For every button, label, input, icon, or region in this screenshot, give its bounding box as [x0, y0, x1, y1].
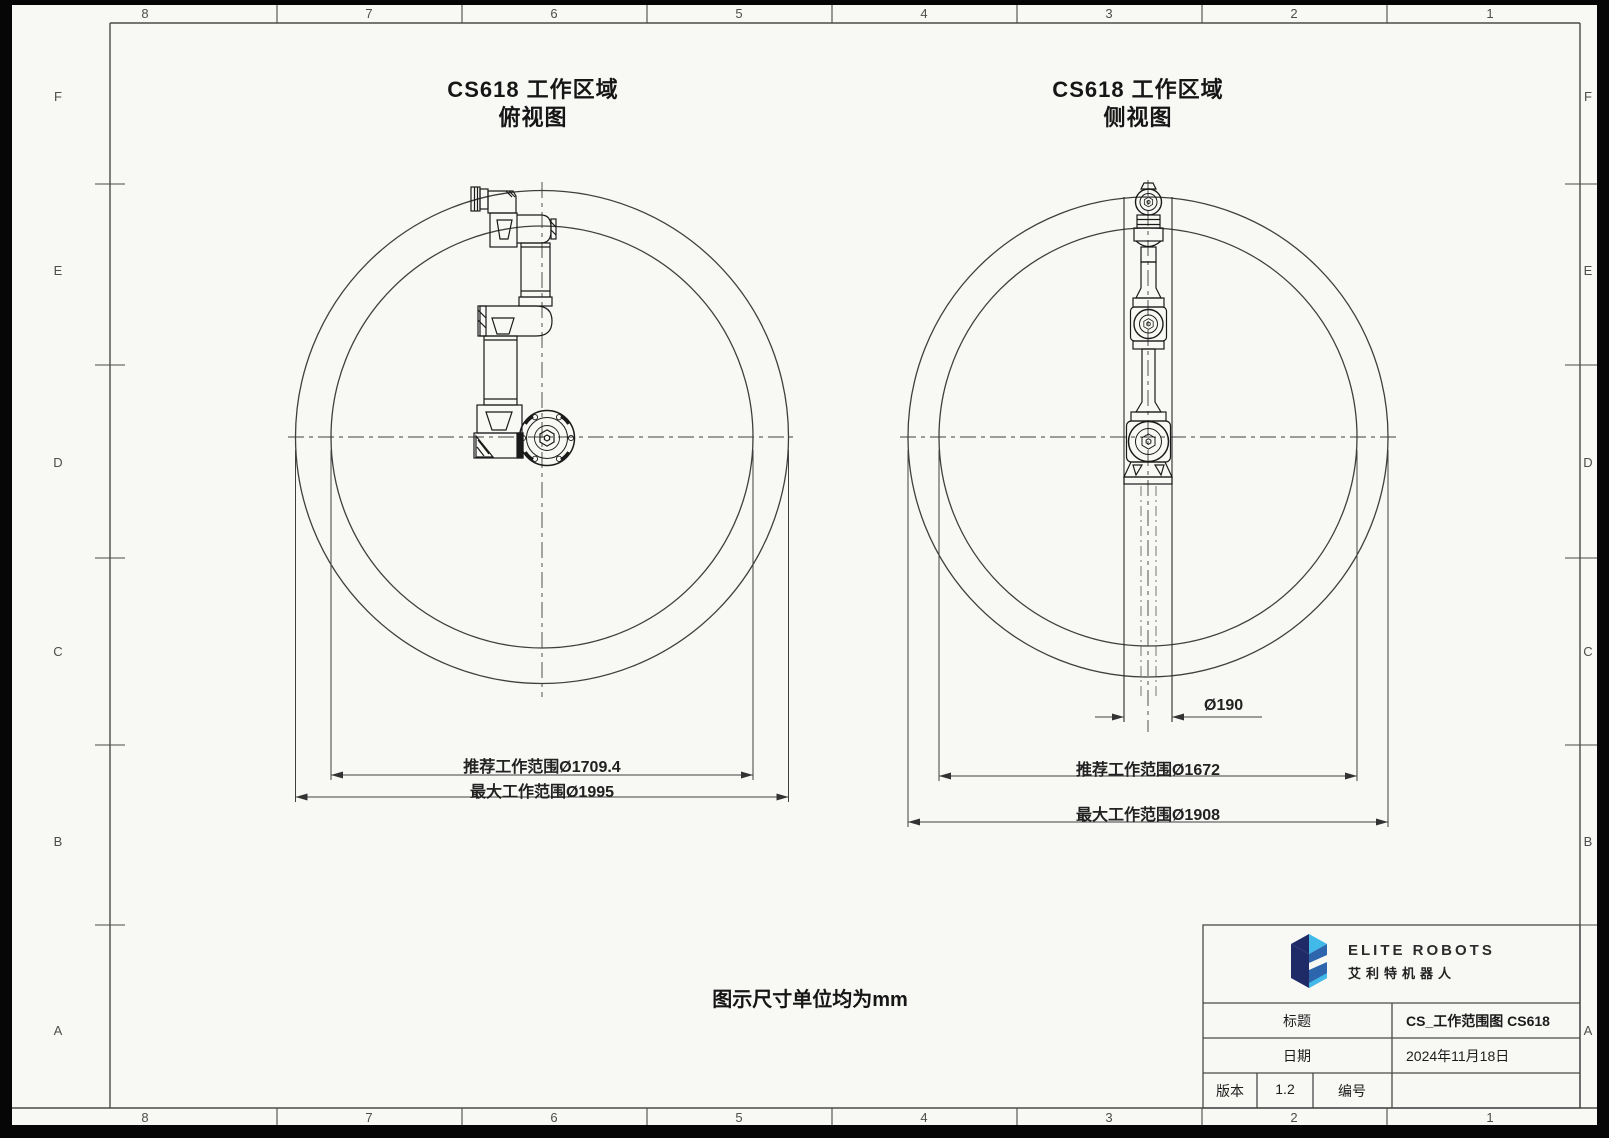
- grid-row-label: B: [1573, 834, 1603, 849]
- top-view-dim-max: 最大工作范围Ø1995: [470, 778, 614, 802]
- grid-row-label: E: [1573, 263, 1603, 278]
- screenshot-root: { "colors": { "paper": "#f8f8f5", "frame…: [0, 0, 1609, 1138]
- side-view-centerlines: [900, 180, 1396, 732]
- grid-col-label: 1: [1475, 1110, 1505, 1125]
- grid-col-label: 8: [130, 6, 160, 21]
- title-label: 标题: [1283, 1011, 1311, 1031]
- title-value: CS_工作范围图 CS618: [1406, 1011, 1550, 1031]
- grid-col-label: 8: [130, 1110, 160, 1125]
- grid-row-label: A: [43, 1023, 73, 1038]
- side-view-drawing: [900, 180, 1396, 827]
- grid-col-label: 2: [1279, 6, 1309, 21]
- grid-row-label: A: [1573, 1023, 1603, 1038]
- side-view-subtitle: 侧视图: [1052, 104, 1223, 132]
- top-view-subtitle: 俯视图: [447, 104, 618, 132]
- side-view-title: CS618 工作区域: [1052, 76, 1223, 104]
- top-view-title: CS618 工作区域: [447, 76, 618, 104]
- brand-name-cn: 艾利特机器人: [1348, 963, 1456, 982]
- side-view-dim-max: 最大工作范围Ø1908: [1076, 801, 1220, 825]
- brand-name-en: ELITE ROBOTS: [1348, 942, 1495, 959]
- version-value: 1.2: [1275, 1081, 1294, 1097]
- grid-col-label: 2: [1279, 1110, 1309, 1125]
- units-note: 图示尺寸单位均为mm: [712, 983, 908, 1012]
- side-view-title-block: CS618 工作区域 侧视图: [1052, 76, 1223, 132]
- grid-row-label: C: [43, 644, 73, 659]
- top-view-dim-recommended: 推荐工作范围Ø1709.4: [463, 753, 620, 777]
- grid-col-label: 1: [1475, 6, 1505, 21]
- grid-col-label: 5: [724, 6, 754, 21]
- grid-row-label: C: [1573, 644, 1603, 659]
- grid-col-label: 3: [1094, 6, 1124, 21]
- version-label: 版本: [1216, 1081, 1244, 1101]
- top-view-centerlines: [288, 182, 796, 697]
- top-view-title-block: CS618 工作区域 俯视图: [447, 76, 618, 132]
- grid-row-label: D: [1573, 455, 1603, 470]
- grid-col-label: 6: [539, 6, 569, 21]
- grid-col-label: 4: [909, 1110, 939, 1125]
- side-view-dim-base: Ø190: [1204, 697, 1243, 715]
- grid-row-label: F: [43, 89, 73, 104]
- date-label: 日期: [1283, 1046, 1311, 1066]
- grid-col-label: 7: [354, 6, 384, 21]
- grid-row-label: B: [43, 834, 73, 849]
- elite-robots-logo: [1288, 933, 1330, 989]
- grid-row-label: E: [43, 263, 73, 278]
- grid-col-label: 5: [724, 1110, 754, 1125]
- date-value: 2024年11月18日: [1406, 1046, 1509, 1066]
- grid-row-label: D: [43, 455, 73, 470]
- grid-col-label: 6: [539, 1110, 569, 1125]
- side-view-dim-recommended: 推荐工作范围Ø1672: [1076, 756, 1220, 780]
- grid-col-label: 7: [354, 1110, 384, 1125]
- grid-row-label: F: [1573, 89, 1603, 104]
- grid-col-label: 4: [909, 6, 939, 21]
- robot-arm-top-view: [471, 187, 575, 466]
- top-view-drawing: [288, 182, 796, 802]
- grid-col-label: 3: [1094, 1110, 1124, 1125]
- number-label: 编号: [1338, 1081, 1366, 1101]
